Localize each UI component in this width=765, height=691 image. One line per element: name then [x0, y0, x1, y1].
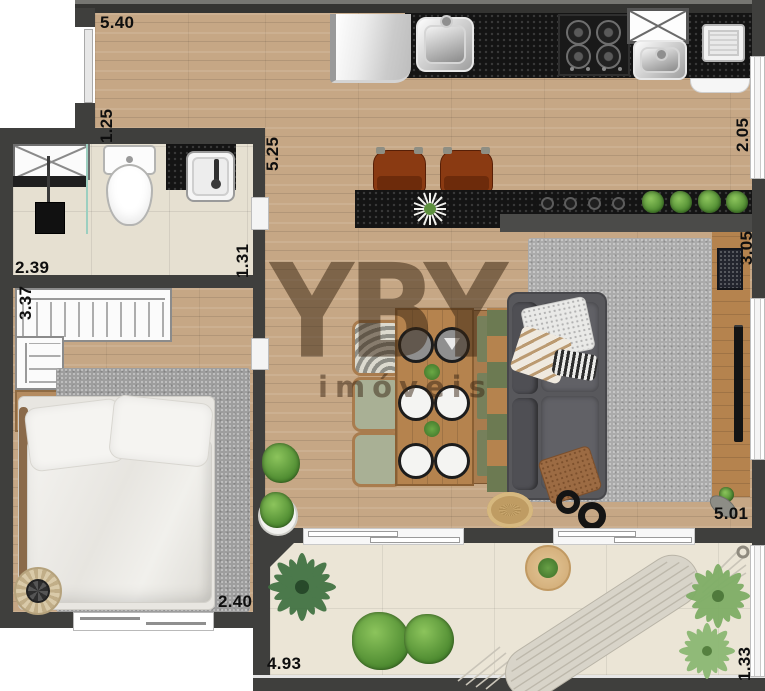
- dim-bedroom-width: 2.40: [218, 592, 252, 612]
- spotlight: [612, 197, 625, 210]
- palm-plant: [674, 618, 740, 684]
- planter-ledge: [537, 190, 752, 214]
- counter-ledge: [690, 78, 750, 93]
- bedroom-window: [73, 612, 214, 631]
- dim-bathroom-width: 2.39: [15, 258, 49, 278]
- stove-knob: [586, 67, 590, 71]
- floor-plan: YBY imóveis 5.40 1.25 5.25 2.05 2.39 1.3…: [0, 0, 765, 691]
- dim-kitchen-right: 2.05: [733, 118, 753, 152]
- decor-ring: [578, 502, 606, 530]
- dim-bathroom-right: 1.31: [233, 244, 253, 278]
- bathroom-top-wall: [0, 128, 265, 144]
- upper-cabinet: [627, 8, 689, 44]
- bar-stool: [373, 150, 426, 194]
- shower-head: [35, 202, 65, 234]
- countertop-appliance: [702, 24, 745, 62]
- bathroom-door: [251, 197, 269, 230]
- stool-seat: [377, 176, 422, 191]
- dim-kitchen-left: 5.25: [263, 137, 283, 171]
- table-centerpiece: [424, 421, 440, 437]
- bathroom-sink: [186, 151, 235, 202]
- kitchen-sink: [416, 17, 474, 72]
- spotlight: [564, 197, 577, 210]
- dim-living-right: 3.05: [737, 231, 757, 265]
- shower-arm: [47, 156, 50, 204]
- bush: [352, 612, 410, 670]
- faucet: [655, 48, 668, 61]
- planter-plant: [670, 191, 692, 213]
- bar-stool: [440, 150, 493, 194]
- planter-plant: [726, 191, 748, 213]
- stool-arm: [376, 147, 385, 154]
- dim-living-bottom: 5.01: [714, 504, 748, 524]
- planter-plant: [642, 191, 664, 213]
- indoor-plant: [262, 443, 300, 483]
- kitchen-half-wall: [500, 214, 752, 232]
- stool-seat: [444, 176, 489, 191]
- fan: [26, 579, 50, 603]
- tv: [734, 325, 743, 442]
- dim-entry-left: 1.25: [97, 109, 117, 143]
- dim-closet-left: 3.37: [16, 286, 36, 320]
- window-pane: [80, 617, 140, 620]
- jute-rug: [487, 492, 533, 528]
- dim-balcony-right: 1.33: [735, 647, 755, 681]
- burner: [596, 20, 621, 45]
- fridge: [330, 14, 411, 83]
- sofa-back-cushion: [512, 398, 538, 490]
- appliance-door: [708, 30, 739, 56]
- planter-plant: [698, 190, 721, 213]
- cabinet-x-mark: [630, 11, 686, 41]
- sofa: [507, 292, 607, 500]
- shower-glass: [86, 144, 88, 234]
- indoor-plant: [260, 492, 294, 528]
- watermark-logo: YBY: [258, 248, 514, 378]
- palm-plant: [262, 547, 342, 627]
- living-window: [750, 298, 765, 460]
- left-wall: [0, 128, 13, 628]
- stove-knob: [570, 67, 574, 71]
- hammock-hook: [738, 547, 748, 557]
- window-pane: [146, 622, 206, 625]
- plate: [398, 443, 434, 479]
- dim-balcony-width: 4.93: [267, 654, 301, 674]
- watermark-subtitle: imóveis: [318, 370, 493, 404]
- wardrobe: [15, 288, 172, 342]
- shower-x-mark: [15, 146, 88, 178]
- bed-pillow: [108, 394, 214, 468]
- burner: [596, 44, 621, 69]
- stool-arm: [414, 147, 423, 154]
- spotlight: [541, 197, 554, 210]
- stool-arm: [443, 147, 452, 154]
- sink-bowl: [192, 157, 229, 196]
- entry-door-leaf: [84, 29, 93, 103]
- stool-arm: [481, 147, 490, 154]
- laundry-sink: [633, 40, 687, 80]
- spotlight: [588, 197, 601, 210]
- sink-basin: [424, 25, 466, 64]
- decor-ring: [556, 490, 580, 514]
- flower-centerpiece: [406, 190, 454, 228]
- burner: [566, 20, 591, 45]
- basket: [14, 567, 62, 615]
- flush-button: [126, 156, 133, 163]
- plate: [434, 443, 470, 479]
- stove-knob: [618, 67, 622, 71]
- shower-cabinet: [13, 144, 90, 180]
- dim-entry-top: 5.40: [100, 13, 134, 33]
- cooktop: [558, 14, 630, 76]
- faucet-head: [211, 179, 221, 189]
- faucet: [440, 15, 453, 28]
- entry-wall-upper: [75, 8, 95, 27]
- burner: [566, 44, 591, 69]
- stove-knob: [602, 67, 606, 71]
